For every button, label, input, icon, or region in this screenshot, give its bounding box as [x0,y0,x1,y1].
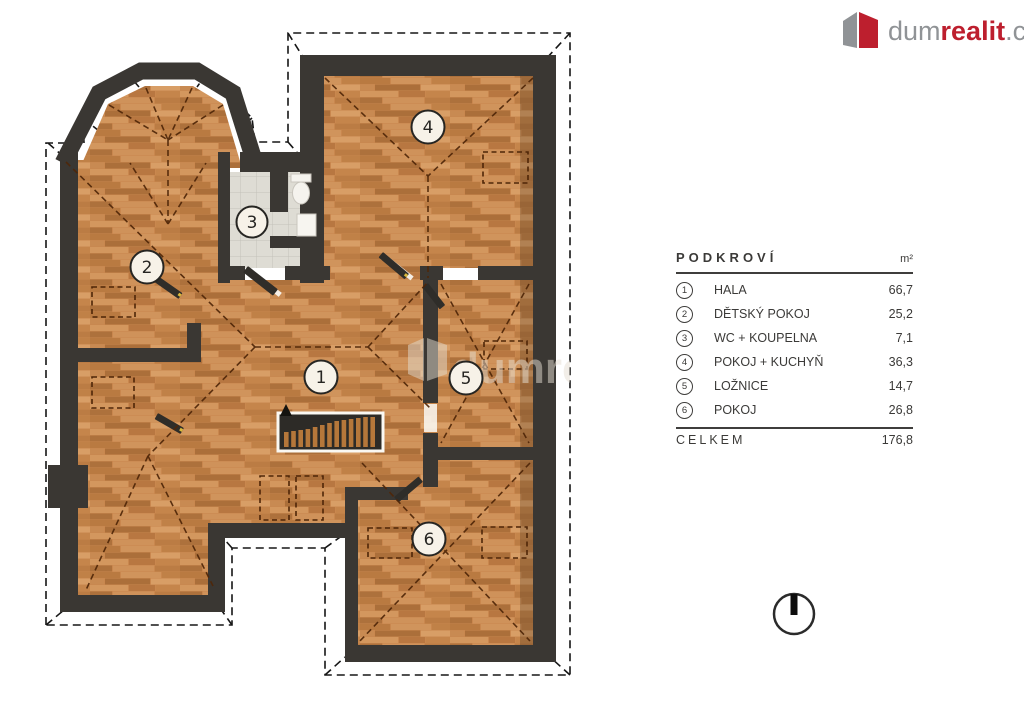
room-name: DĚTSKÝ POKOJ [714,307,810,321]
north-pointer [791,594,798,615]
svg-text:2: 2 [142,258,153,278]
dumrealit-logo-icon [843,11,879,51]
logo-text-realit: realit [941,16,1006,46]
legend-row-detsky-pokoj: 2 DĚTSKÝ POKOJ 25,2 [676,302,913,326]
svg-text:6: 6 [424,530,435,550]
room-number-badge: 1 [676,282,693,299]
legend-row-pokoj-kuchyn: 4 POKOJ + KUCHYŇ 36,3 [676,350,913,374]
legend-total-row: CELKEM 176,8 [676,427,913,447]
svg-text:5: 5 [461,369,472,389]
total-label: CELKEM [676,433,745,447]
room-legend-table: PODKROVÍ m² 1 HALA 66,7 2 DĚTSKÝ POKOJ 2… [676,250,913,447]
room-name: POKOJ + KUCHYŇ [714,355,823,369]
toilet-icon [293,182,310,204]
room-number-badge: 6 [676,402,693,419]
room-name: WC + KOUPELNA [714,331,817,345]
chimney [48,465,88,508]
room-name: HALA [714,283,747,297]
room-area: 66,7 [889,283,913,297]
room-badge-1: 1 [305,361,338,394]
room-area: 7,1 [896,331,913,345]
svg-text:3: 3 [247,213,258,233]
dumrealit-logo: dumrealit.cz [843,11,1024,51]
svg-text:1: 1 [316,368,327,388]
room-number-badge: 4 [676,354,693,371]
total-area: 176,8 [882,433,913,447]
legend-row-pokoj: 6 POKOJ 26,8 [676,398,913,422]
room-badge-2: 2 [131,251,164,284]
room-badge-3: 3 [237,207,268,238]
room-name: LOŽNICE [714,379,768,393]
logo-text-cz: .cz [1005,16,1024,46]
room-number-badge: 2 [676,306,693,323]
legend-title: PODKROVÍ [676,250,777,265]
room-area: 25,2 [889,307,913,321]
north-arrow-compass [771,591,817,642]
logo-text-dum: dum [888,16,941,46]
room-area: 26,8 [889,403,913,417]
legend-header: PODKROVÍ m² [676,250,913,274]
room-area: 36,3 [889,355,913,369]
floorplan-svg: dumrea 1 2 3 4 5 [0,0,640,710]
legend-row-hala: 1 HALA 66,7 [676,278,913,302]
room-badge-5: 5 [450,362,483,395]
legend-row-wc-koupelna: 3 WC + KOUPELNA 7,1 [676,326,913,350]
room-badge-6: 6 [413,523,446,556]
room-area: 14,7 [889,379,913,393]
legend-row-loznice: 5 LOŽNICE 14,7 [676,374,913,398]
room-number-badge: 5 [676,378,693,395]
sink-icon [297,214,316,236]
room-number-badge: 3 [676,330,693,347]
dumrealit-logo-text: dumrealit.cz [888,16,1024,47]
svg-text:4: 4 [423,118,434,138]
room-badge-4: 4 [412,111,445,144]
toilet-tank [291,174,311,182]
floorplan-page: dumrea 1 2 3 4 5 [0,0,1024,710]
room-name: POKOJ [714,403,756,417]
legend-unit-label: m² [900,253,913,265]
floorplan-drawing: dumrea 1 2 3 4 5 [0,0,640,710]
